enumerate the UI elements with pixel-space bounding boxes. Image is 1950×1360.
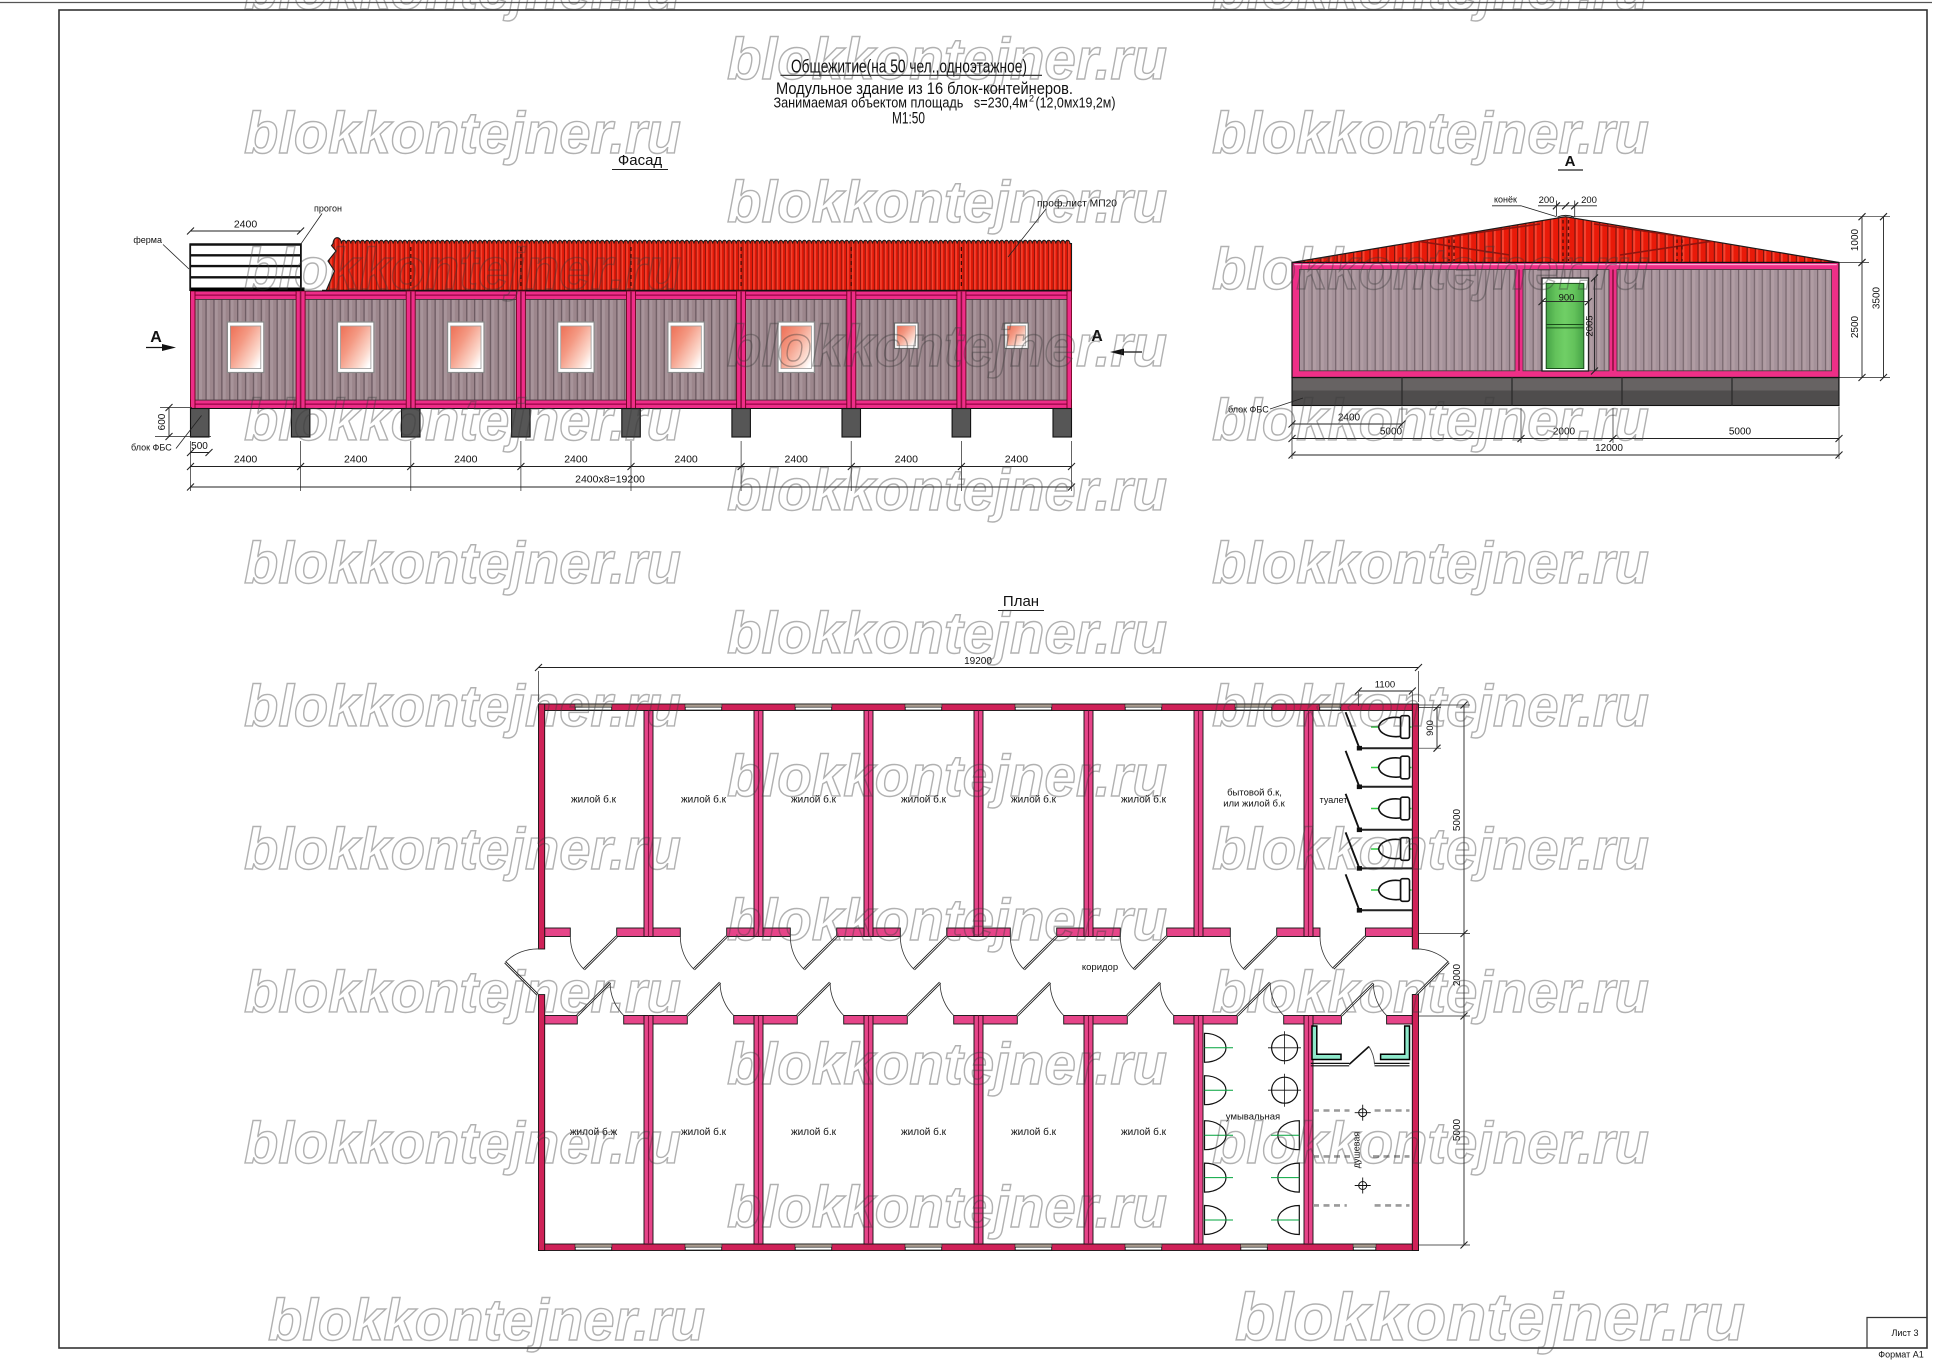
svg-text:жилой б.к: жилой б.к: [901, 1126, 947, 1138]
svg-text:blokkontejner.ru: blokkontejner.ru: [727, 1175, 1167, 1240]
svg-text:blokkontejner.ru: blokkontejner.ru: [244, 531, 681, 596]
svg-text:2400: 2400: [564, 454, 588, 466]
svg-text:blokkontejner.ru: blokkontejner.ru: [244, 1111, 681, 1176]
svg-text:или жилой б.к: или жилой б.к: [1223, 799, 1285, 810]
svg-text:blokkontejner.ru: blokkontejner.ru: [727, 744, 1167, 809]
svg-text:1000: 1000: [1850, 228, 1861, 251]
svg-text:blokkontejner.ru: blokkontejner.ru: [727, 888, 1167, 953]
svg-text:бытовой б.к,: бытовой б.к,: [1227, 788, 1282, 799]
svg-text:2400х8=19200: 2400х8=19200: [575, 474, 645, 486]
svg-text:2400: 2400: [454, 454, 478, 466]
svg-text:blokkontejner.ru: blokkontejner.ru: [727, 458, 1167, 523]
svg-text:blokkontejner.ru: blokkontejner.ru: [1212, 388, 1649, 453]
svg-text:2: 2: [1029, 94, 1034, 104]
svg-text:blokkontejner.ru: blokkontejner.ru: [727, 601, 1167, 666]
svg-text:Формат А1: Формат А1: [1878, 1350, 1923, 1360]
svg-text:200: 200: [1539, 195, 1555, 206]
svg-text:blokkontejner.ru: blokkontejner.ru: [1235, 1280, 1745, 1355]
svg-text:жилой б.к: жилой б.к: [681, 794, 727, 806]
svg-text:blokkontejner.ru: blokkontejner.ru: [1212, 1111, 1649, 1176]
svg-text:жилой б.к: жилой б.к: [571, 794, 617, 806]
svg-text:жилой б.к: жилой б.к: [1121, 1126, 1167, 1138]
svg-text:blokkontejner.ru: blokkontejner.ru: [244, 817, 681, 882]
svg-text:blokkontejner.ru: blokkontejner.ru: [1212, 531, 1649, 596]
svg-text:blokkontejner.ru: blokkontejner.ru: [244, 101, 681, 166]
svg-text:2500: 2500: [1850, 315, 1861, 338]
svg-text:2400: 2400: [344, 454, 368, 466]
svg-text:Лист 3: Лист 3: [1891, 1328, 1918, 1338]
svg-text:блок ФБС: блок ФБС: [131, 443, 172, 453]
svg-text:blokkontejner.ru: blokkontejner.ru: [244, 388, 681, 453]
svg-text:blokkontejner.ru: blokkontejner.ru: [727, 314, 1167, 379]
svg-text:2400: 2400: [234, 454, 258, 466]
svg-text:ферма: ферма: [133, 235, 162, 245]
svg-text:blokkontejner.ru: blokkontejner.ru: [1212, 237, 1649, 302]
svg-text:500: 500: [191, 441, 208, 452]
svg-text:blokkontejner.ru: blokkontejner.ru: [727, 170, 1167, 235]
svg-text:blokkontejner.ru: blokkontejner.ru: [1212, 101, 1649, 166]
svg-text:blokkontejner.ru: blokkontejner.ru: [727, 1032, 1167, 1097]
svg-text:туалет: туалет: [1320, 795, 1348, 805]
svg-text:конёк: конёк: [1494, 195, 1517, 205]
svg-text:blokkontejner.ru: blokkontejner.ru: [1212, 674, 1649, 739]
svg-text:А: А: [150, 329, 162, 346]
svg-text:(12,0мх19,2м): (12,0мх19,2м): [1036, 95, 1116, 111]
svg-text:blokkontejner.ru: blokkontejner.ru: [1212, 960, 1649, 1025]
svg-text:blokkontejner.ru: blokkontejner.ru: [1212, 817, 1649, 882]
svg-text:5000: 5000: [1729, 427, 1752, 438]
svg-text:2005: 2005: [1585, 315, 1596, 336]
svg-text:blokkontejner.ru: blokkontejner.ru: [244, 237, 681, 302]
svg-text:2400: 2400: [234, 219, 258, 231]
svg-text:М1:50: М1:50: [892, 109, 925, 128]
svg-text:жилой б.к: жилой б.к: [1011, 1126, 1057, 1138]
svg-text:blokkontejner.ru: blokkontejner.ru: [727, 27, 1167, 92]
svg-text:600: 600: [157, 413, 168, 430]
svg-text:жилой б.к: жилой б.к: [681, 1126, 727, 1138]
svg-text:жилой б.к: жилой б.к: [791, 1126, 837, 1138]
svg-text:прогон: прогон: [314, 204, 342, 214]
svg-text:blokkontejner.ru: blokkontejner.ru: [244, 960, 681, 1025]
svg-text:коридор: коридор: [1082, 962, 1118, 973]
svg-text:3500: 3500: [1872, 286, 1883, 309]
svg-text:blokkontejner.ru: blokkontejner.ru: [268, 1288, 705, 1353]
svg-text:blokkontejner.ru: blokkontejner.ru: [244, 0, 681, 22]
svg-text:blokkontejner.ru: blokkontejner.ru: [244, 674, 681, 739]
svg-text:200: 200: [1581, 195, 1597, 206]
svg-text:2400: 2400: [674, 454, 698, 466]
svg-text:blokkontejner.ru: blokkontejner.ru: [1212, 0, 1649, 22]
